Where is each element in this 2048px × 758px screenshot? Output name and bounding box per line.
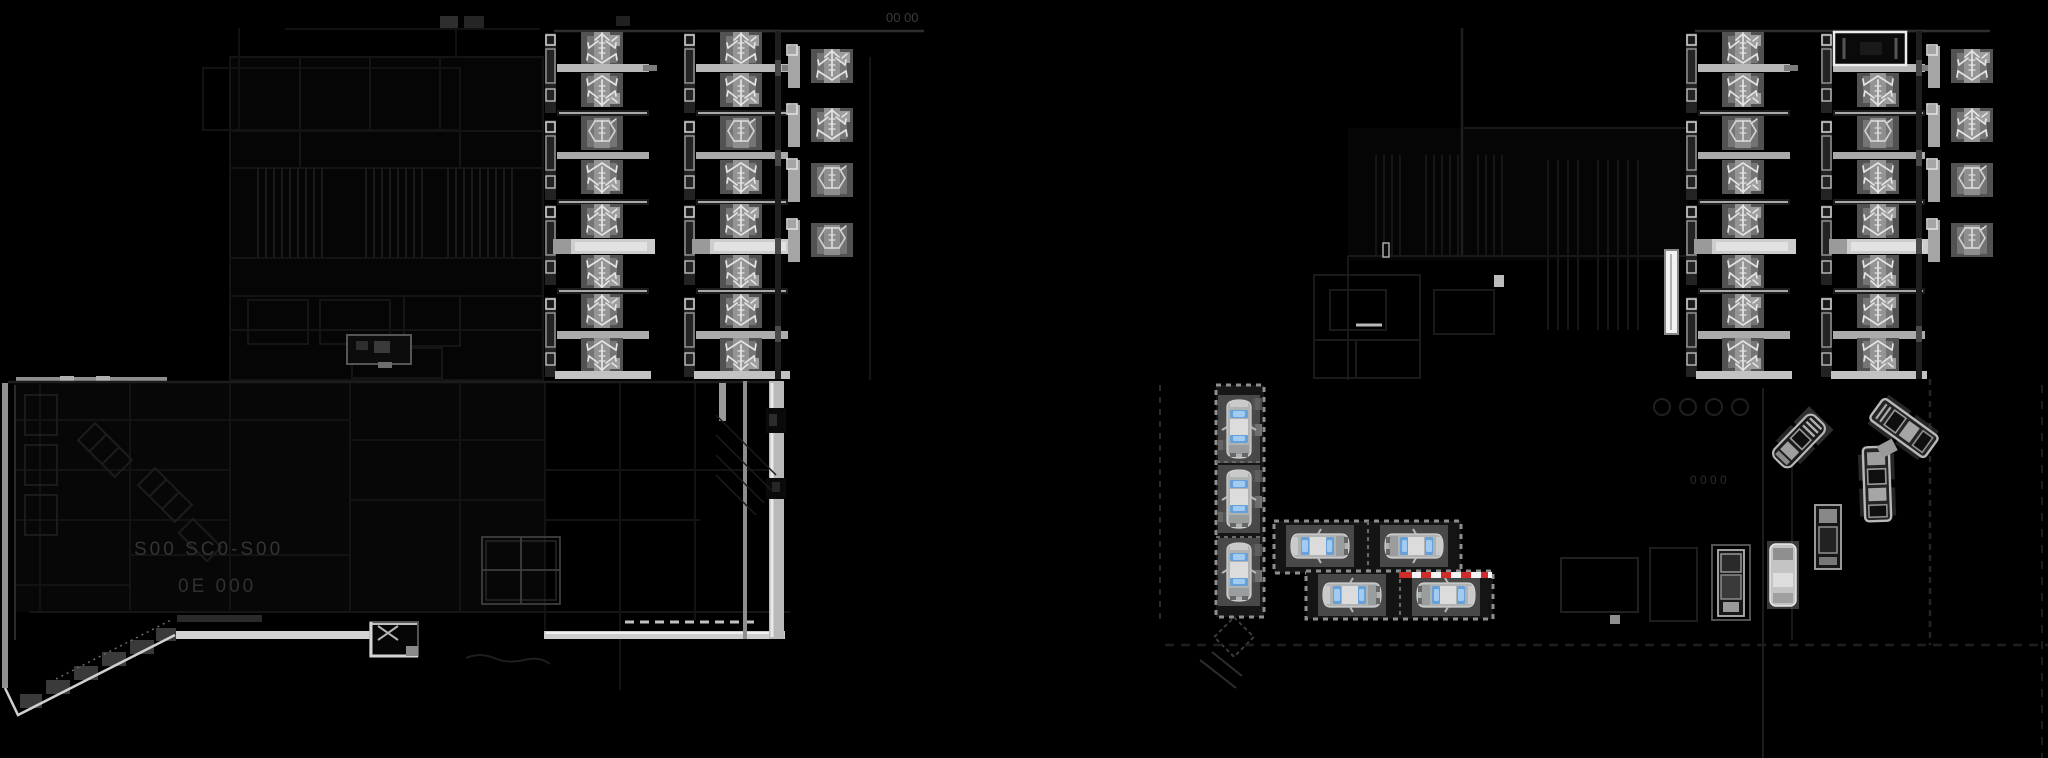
svg-text:00 00: 00 00 xyxy=(886,10,919,25)
svg-text:0 0 0 0: 0 0 0 0 xyxy=(1690,473,1727,487)
svg-text:S00 SC0-S00: S00 SC0-S00 xyxy=(134,539,283,560)
svg-text:0E 000: 0E 000 xyxy=(178,576,256,597)
